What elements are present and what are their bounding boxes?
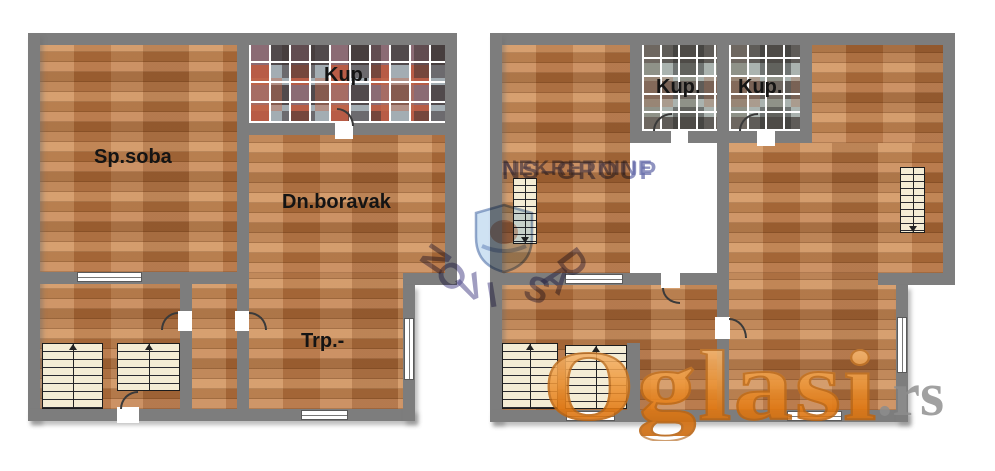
stair-direction-arrow <box>521 237 529 243</box>
wall <box>800 33 812 143</box>
room-label-bedroom: Sp.soba <box>94 146 172 169</box>
door-opening <box>117 407 139 423</box>
door-opening <box>178 311 192 331</box>
room-label-living: Dn.boravak <box>282 191 391 214</box>
wall <box>943 33 955 285</box>
portal-tld-watermark: .rs <box>877 364 944 426</box>
door-opening <box>671 129 688 146</box>
portal-watermark: Oglasi <box>543 336 878 436</box>
window <box>77 272 142 282</box>
room-label-bathroom: Kup. <box>324 64 368 87</box>
window <box>565 274 623 284</box>
wall <box>28 33 40 421</box>
staircase <box>513 178 537 244</box>
stair-direction-arrow <box>145 344 153 350</box>
wall <box>630 33 642 143</box>
wall <box>403 273 457 285</box>
door-opening <box>661 271 680 288</box>
staircase <box>42 343 103 409</box>
stair-rail <box>525 179 526 243</box>
wall <box>237 123 335 135</box>
stair-direction-arrow <box>526 344 534 350</box>
room-label-bathroom1: Kup. <box>656 76 700 99</box>
wall <box>775 131 812 143</box>
wall <box>28 409 415 421</box>
wall <box>878 273 955 285</box>
wall <box>180 331 192 409</box>
room-floor-corridor <box>192 284 237 409</box>
wall <box>237 33 249 409</box>
stair-direction-arrow <box>69 344 77 350</box>
stair-rail <box>73 344 74 408</box>
wall <box>688 131 758 143</box>
window <box>301 410 348 420</box>
stair-rail <box>530 344 531 408</box>
wall <box>445 33 457 285</box>
stair-rail <box>149 344 150 390</box>
staircase <box>117 343 180 391</box>
wall <box>353 123 457 135</box>
floorplan-image: Sp.soba Kup. Dn.boravak Trp.- <box>0 0 995 471</box>
window <box>404 318 414 380</box>
wall <box>680 273 717 285</box>
wall <box>630 131 672 143</box>
stair-rail <box>913 168 914 232</box>
door-opening <box>235 311 249 331</box>
wall <box>180 284 192 311</box>
door-opening <box>757 129 775 146</box>
room-label-dining: Trp.- <box>301 330 344 353</box>
wall <box>490 33 502 422</box>
stair-direction-arrow <box>909 226 917 232</box>
staircase <box>900 167 925 233</box>
room-floor-right-a <box>812 45 943 143</box>
wall <box>717 33 729 318</box>
room-label-bathroom2: Kup. <box>738 76 782 99</box>
